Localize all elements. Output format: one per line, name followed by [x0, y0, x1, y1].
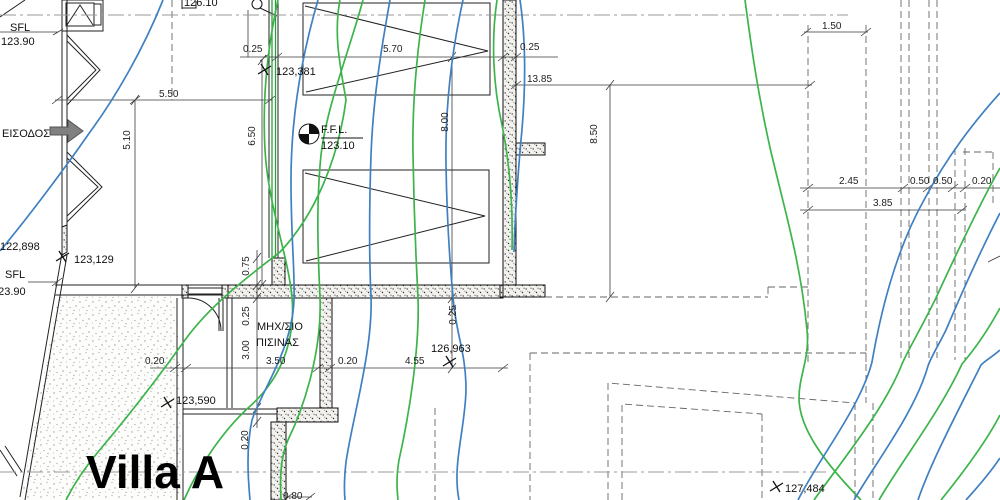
dimension-label: 0.20: [240, 430, 251, 450]
cad-site-plan-viewport[interactable]: SFL123.90ΕΙΣΟΔΟΣ122,898SFL123.90123,1291…: [0, 0, 1000, 500]
dimension-label: 6.50: [247, 126, 258, 146]
elevation-label: SFL: [5, 269, 25, 281]
dimension-label: 8.50: [589, 124, 600, 144]
dimension-label: 0.20: [338, 356, 358, 367]
dimension-label: 5.10: [122, 130, 133, 150]
elevation-label: F.F.L.: [321, 124, 347, 136]
elevation-label: 123.90: [1, 36, 35, 48]
dimension-label: 0.50: [910, 176, 930, 187]
elevation-label: 126.10: [184, 0, 218, 9]
elevation-label: 123,590: [176, 395, 216, 407]
dimension-label: 0.25: [520, 42, 540, 53]
dimension-label: 2.45: [839, 176, 859, 187]
dimension-label: 8.00: [440, 112, 451, 132]
elevation-label: 123.10: [321, 140, 355, 152]
plan-title-label: Villa A: [86, 446, 224, 498]
dimension-label: 3.85: [873, 198, 893, 209]
level-flag-circle: [252, 0, 262, 9]
glazing: [272, 0, 276, 258]
room-label: ΠΙΣΙΝΑΣ: [256, 337, 299, 349]
dimension-label: 3.50: [266, 356, 286, 367]
room-label: ΜΗΧ/ΣΙΟ: [257, 321, 303, 333]
room-label: ΕΙΣΟΔΟΣ: [2, 128, 50, 140]
dimension-label: 13.85: [527, 74, 552, 85]
elevation-label: 127,484: [785, 483, 825, 495]
dimension-label: 4.55: [405, 356, 425, 367]
elevation-label: 123,129: [74, 254, 114, 266]
dimension-label: 0.20: [972, 176, 992, 187]
dimension-label: 0.25: [241, 306, 252, 326]
elevation-label: 123.90: [0, 286, 26, 298]
dimension-label: 0.80: [283, 491, 303, 500]
dimension-label: 0.50: [933, 176, 953, 187]
dimension-label: 0.20: [145, 356, 165, 367]
elevation-label: SFL: [10, 22, 30, 34]
dimension-label: 0.75: [241, 256, 252, 276]
villa-a-site-plan[interactable]: SFL123.90ΕΙΣΟΔΟΣ122,898SFL123.90123,1291…: [0, 0, 1000, 500]
dimension-label: 0.25: [448, 305, 459, 325]
dimension-label: 5.70: [383, 44, 403, 55]
elevation-label: 122,898: [0, 241, 40, 253]
elevation-label: 126,963: [431, 343, 471, 355]
dimension-label: 0.25: [243, 44, 263, 55]
drawing-layers: [0, 0, 1000, 500]
elevation-label: 123,381: [276, 66, 316, 78]
dimension-label: 5.50: [159, 89, 179, 100]
dimension-label: 3.00: [241, 340, 252, 360]
dimension-label: 1.50: [822, 21, 842, 32]
